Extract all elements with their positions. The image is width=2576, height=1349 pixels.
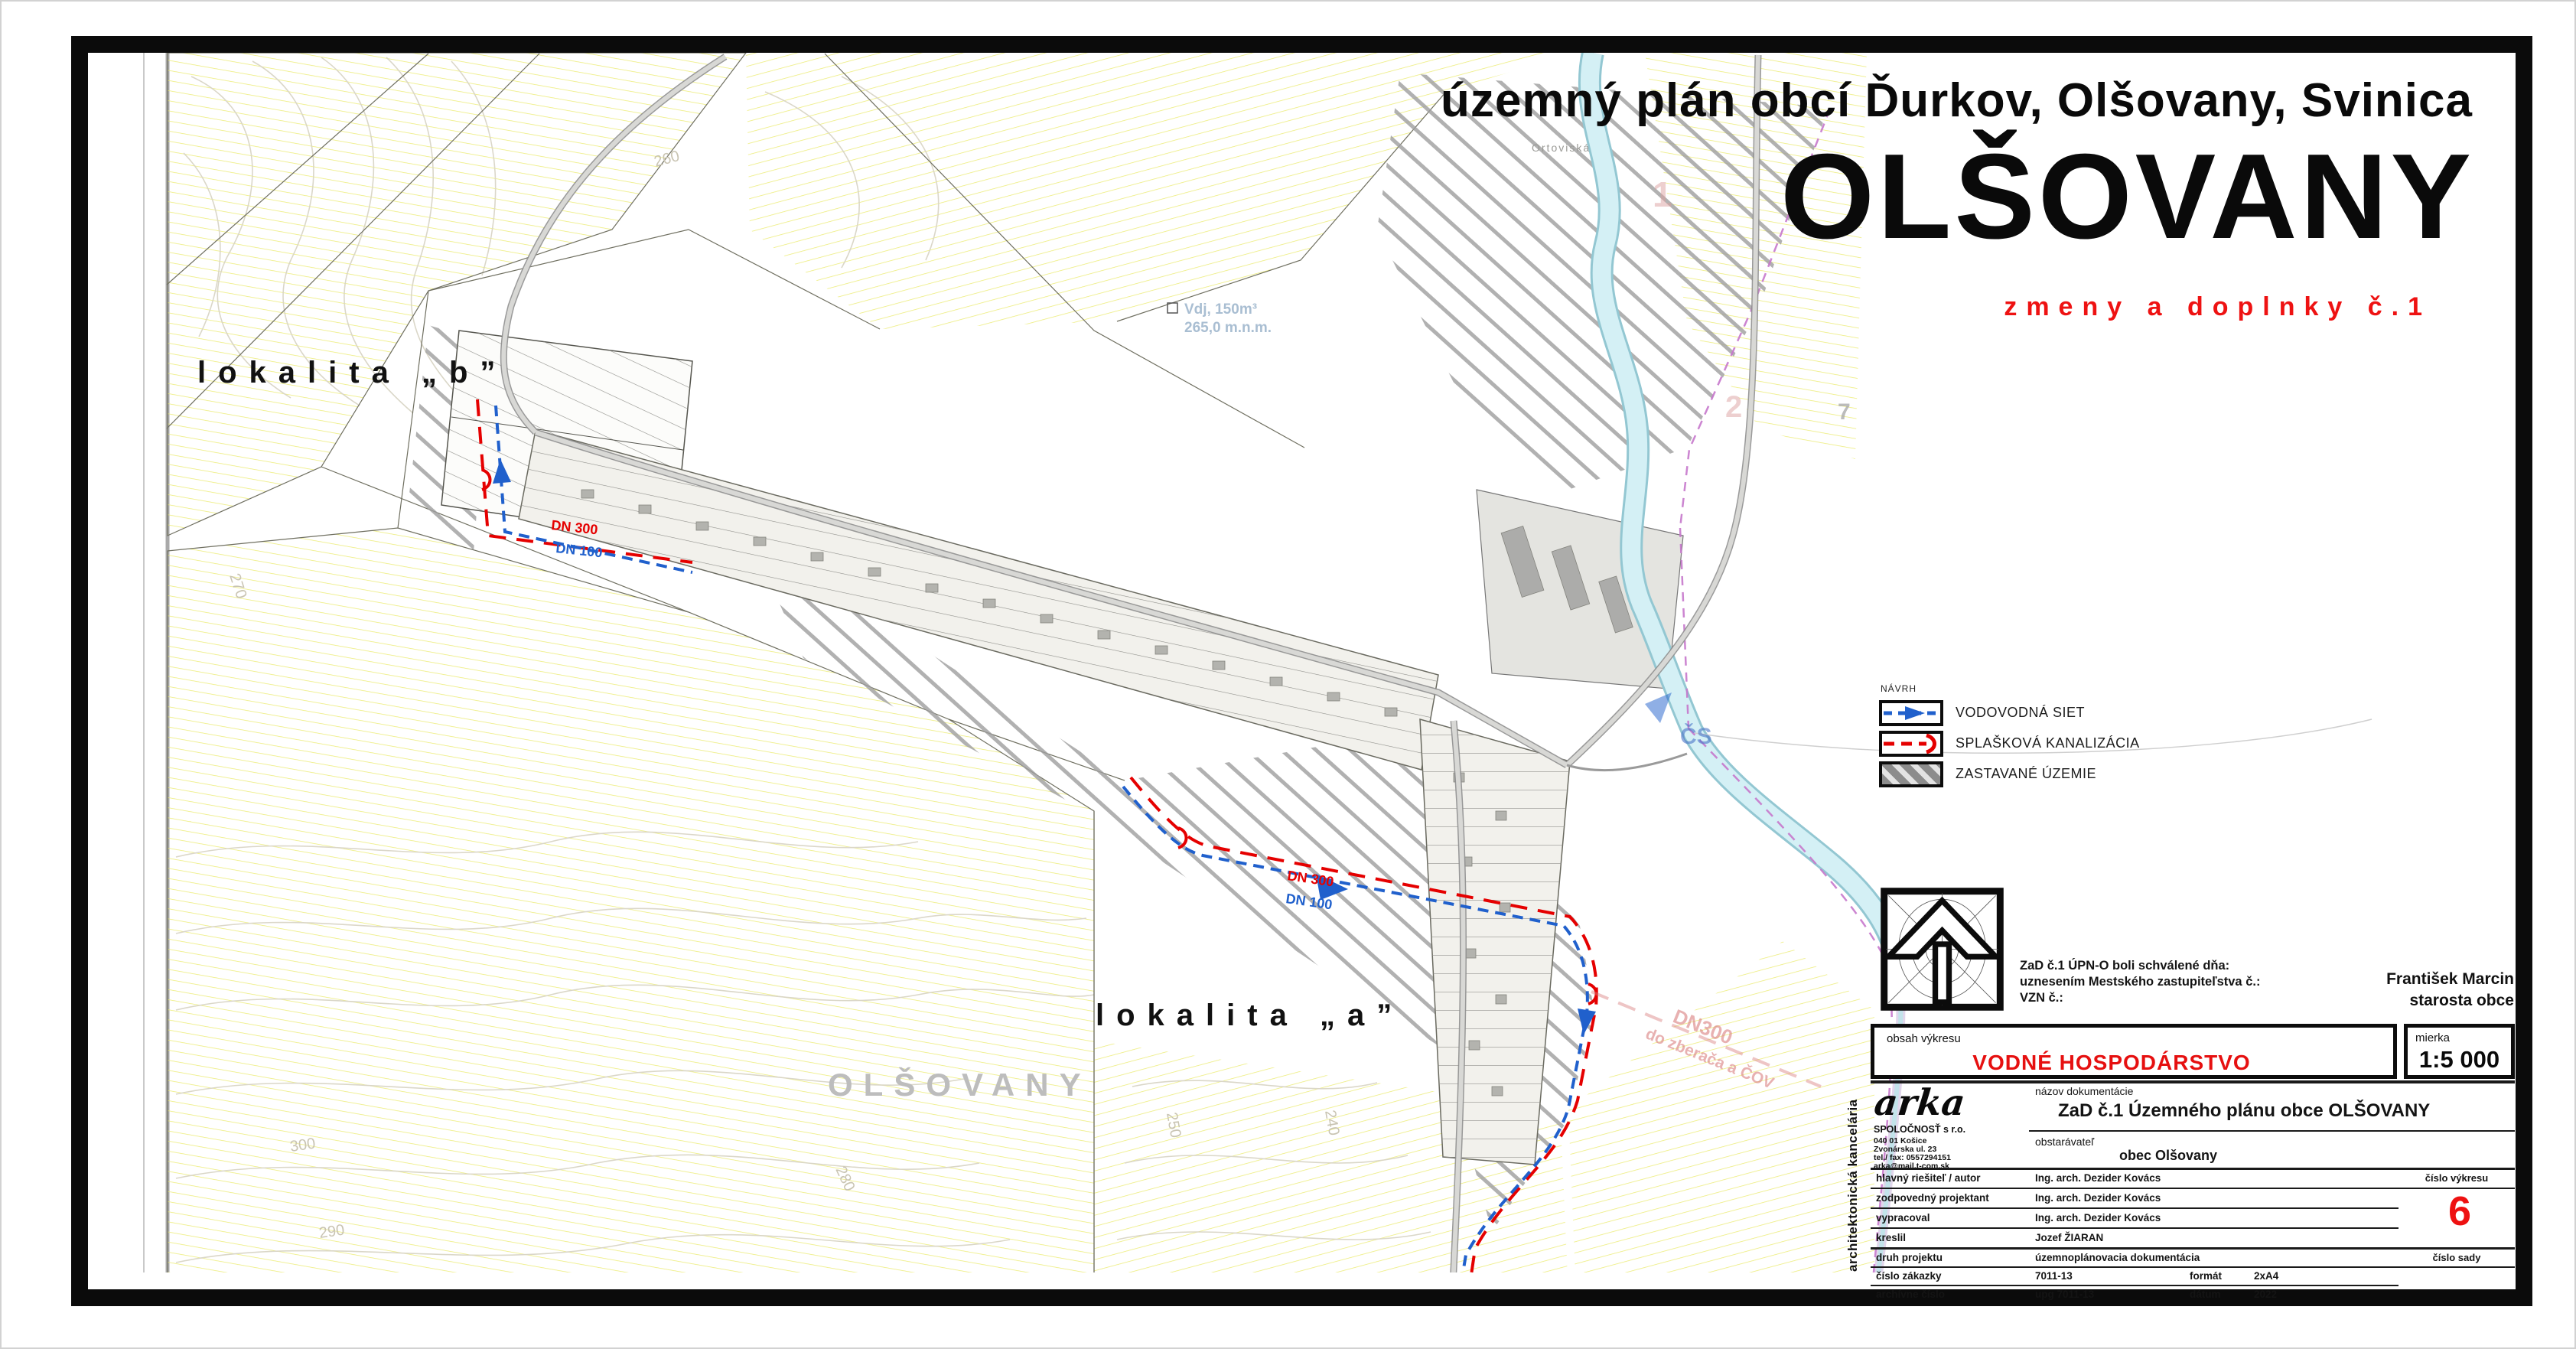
drawing-no-label: číslo výkresu [2399, 1172, 2515, 1184]
municipality-title: OLŠOVANY [1377, 136, 2474, 257]
scale-value: 1:5 000 [2408, 1046, 2511, 1074]
legend-label-builtup: ZASTAVANÉ ÚZEMIE [1956, 766, 2096, 782]
approval-line-2: uznesením Mestského zastupiteľstva č.: [2020, 974, 2260, 990]
row-author-value: Ing. arch. Dezider Kovács [2035, 1172, 2161, 1184]
mayor-name: František Marcin [2265, 969, 2514, 990]
mayor-role: starosta obce [2265, 990, 2514, 1012]
format-label: formát [2190, 1270, 2222, 1282]
legend-item-water: VODOVODNÁ SIET [1879, 700, 2476, 728]
firm-logo: arka [1872, 1082, 1967, 1124]
set-no-label: číslo sady [2399, 1252, 2515, 1263]
row-order-label: číslo zákazky [1876, 1270, 1942, 1282]
legend-item-builtup: ZASTAVANÉ ÚZEMIE [1879, 761, 2476, 789]
legend-label-sewer: SPLAŠKOVÁ KANALIZÁCIA [1956, 735, 2140, 751]
drawing-no-value: 6 [2429, 1188, 2490, 1235]
plan-title: územný plán obcí Ďurkov, Olšovany, Svini… [918, 73, 2473, 128]
scale-label: mierka [2415, 1031, 2450, 1044]
doc-name-value: ZaD č.1 Územného plánu obce OLŠOVANY [2058, 1100, 2430, 1122]
row-archive-value: upg 7011-13 [2035, 1289, 2094, 1300]
water-line-swatch [1879, 700, 1943, 726]
row-type-value: územnoplánovacia dokumentácia [2035, 1252, 2200, 1263]
sewer-line-swatch [1879, 731, 1943, 757]
approval-line-3: VZN č.: [2020, 990, 2260, 1006]
amendment-subtitle: zmeny a doplnky č.1 [1530, 292, 2431, 322]
approval-line-1: ZaD č.1 ÚPN-O boli schválené dňa: [2020, 958, 2260, 974]
legend-heading: NÁVRH [1881, 683, 1917, 694]
plan-sheet: lokalita „b” lokalita „a” OLŠOVANY Ortov… [0, 0, 2576, 1349]
row-prepared-label: vypracoval [1876, 1212, 1930, 1224]
row-designer-label: zodpovedný projektant [1876, 1192, 1989, 1204]
row-prepared-value: Ing. arch. Dezider Kovács [2035, 1212, 2161, 1224]
row-drawn-label: kreslil [1876, 1232, 1906, 1243]
content-label: obsah výkresu [1887, 1032, 1961, 1045]
approval-note: ZaD č.1 ÚPN-O boli schválené dňa: uznese… [2020, 958, 2260, 1006]
built-up-swatch [1879, 761, 1943, 787]
north-arrow [1880, 886, 2004, 1012]
format-value: 2xA4 [2254, 1270, 2278, 1282]
row-drawn-value: Jozef ŽIARAN [2035, 1232, 2103, 1243]
row-type-label: druh projektu [1876, 1252, 1943, 1263]
scale-box: mierka 1:5 000 [2404, 1024, 2515, 1079]
date-value: 2022 [2254, 1289, 2277, 1300]
client-label: obstarávateľ [2035, 1136, 2094, 1148]
legend-label-water: VODOVODNÁ SIET [1956, 705, 2085, 721]
row-author-label: hlavný riešiteľ / autor [1876, 1172, 1981, 1184]
drawing-content-box: obsah výkresu VODNÉ HOSPODÁRSTVO [1871, 1024, 2397, 1079]
legend-item-sewer: SPLAŠKOVÁ KANALIZÁCIA [1879, 731, 2476, 758]
firm-vertical-text: architektonická kancelária [1845, 1077, 1868, 1293]
firm-company: SPOLOČNOSŤ s r.o. [1874, 1124, 1965, 1135]
doc-name-label: názov dokumentácie [2035, 1085, 2133, 1097]
content-value: VODNÉ HOSPODÁRSTVO [1920, 1051, 2303, 1075]
row-designer-value: Ing. arch. Dezider Kovács [2035, 1192, 2161, 1204]
row-archive-label: archívne číslo [1876, 1289, 1945, 1300]
row-order-value: 7011-13 [2035, 1270, 2073, 1282]
mayor-signature: František Marcin starosta obce [2265, 969, 2514, 1012]
date-label: dátum [2190, 1289, 2221, 1300]
client-value: obec Olšovany [2119, 1148, 2217, 1164]
